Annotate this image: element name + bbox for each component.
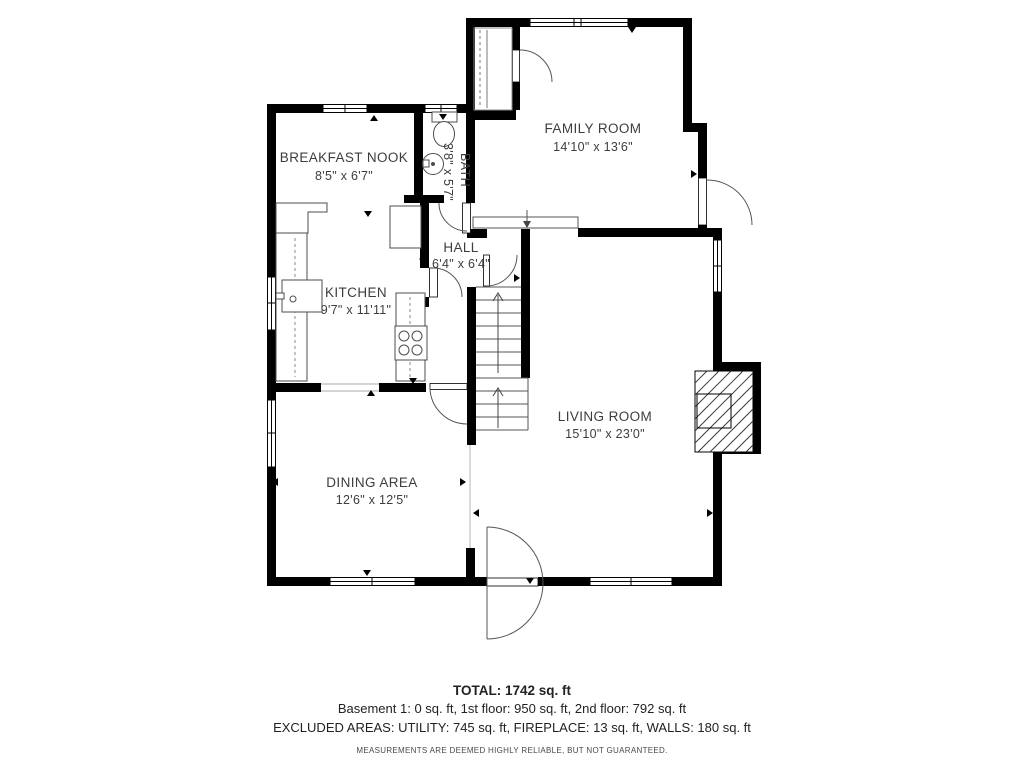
room-label-hall: HALL <box>443 240 478 255</box>
door-bath <box>439 203 471 233</box>
room-label-living-room: LIVING ROOM <box>558 409 652 424</box>
bath-sink <box>423 154 444 175</box>
staircase <box>476 287 528 430</box>
room-label-family-room: FAMILY ROOM <box>545 121 642 136</box>
room-dims-bath: 3'8" x 5'7" <box>441 143 455 201</box>
window-kitchen-left <box>268 277 276 330</box>
room-label-breakfast-nook: BREAKFAST NOOK <box>280 150 408 165</box>
closet-interior <box>474 28 512 110</box>
room-dims-kitchen: 9'7" x 11'11" <box>321 303 392 317</box>
door-hall-kitchen <box>430 268 463 297</box>
room-dims-family-room: 14'10" x 13'6" <box>553 140 633 154</box>
window-bath <box>425 105 457 113</box>
stair-direction-arrow-lower <box>493 388 503 428</box>
kitchen-counter-top-return <box>276 203 327 233</box>
door-family-exterior <box>699 178 753 225</box>
floorplan-page: BREAKFAST NOOK 8'5" x 6'7" BATH 3'8" x 5… <box>0 0 1024 768</box>
window-living-bottom <box>590 578 672 586</box>
stove <box>395 326 427 360</box>
room-label-kitchen: KITCHEN <box>325 285 387 300</box>
window-dining-left <box>268 400 276 467</box>
floorplan-drawing: BREAKFAST NOOK 8'5" x 6'7" BATH 3'8" x 5… <box>0 0 1024 672</box>
room-dims-living-room: 15'10" x 23'0" <box>565 427 645 441</box>
area-summary: TOTAL: 1742 sq. ft Basement 1: 0 sq. ft,… <box>0 681 1024 755</box>
opening-kitchen-dining <box>321 384 379 391</box>
room-dims-dining-area: 12'6" x 12'5" <box>336 493 408 507</box>
window-family-room <box>530 19 628 27</box>
floor-areas: Basement 1: 0 sq. ft, 1st floor: 950 sq.… <box>0 700 1024 719</box>
room-dims-breakfast-nook: 8'5" x 6'7" <box>315 169 373 183</box>
total-area: TOTAL: 1742 sq. ft <box>0 681 1024 700</box>
kitchen-sink <box>276 280 322 312</box>
room-label-bath: BATH <box>458 153 472 187</box>
window-dining-bottom <box>330 578 415 586</box>
window-living-right <box>714 240 722 292</box>
door-front-entry <box>487 527 543 639</box>
door-basement-stairs <box>430 384 467 425</box>
door-closet <box>513 50 553 82</box>
window-breakfast-nook <box>323 105 367 113</box>
family-room-step-edge <box>473 210 578 228</box>
excluded-areas: EXCLUDED AREAS: UTILITY: 745 sq. ft, FIR… <box>0 719 1024 738</box>
disclaimer: MEASUREMENTS ARE DEEMED HIGHLY RELIABLE,… <box>0 746 1024 755</box>
room-label-dining-area: DINING AREA <box>326 475 417 490</box>
room-dims-hall: 6'4" x 6'4" <box>432 257 490 271</box>
room-labels: BREAKFAST NOOK 8'5" x 6'7" BATH 3'8" x 5… <box>280 121 652 507</box>
refrigerator <box>390 206 421 248</box>
stair-direction-arrow-up <box>493 293 503 373</box>
fireplace <box>695 371 753 452</box>
